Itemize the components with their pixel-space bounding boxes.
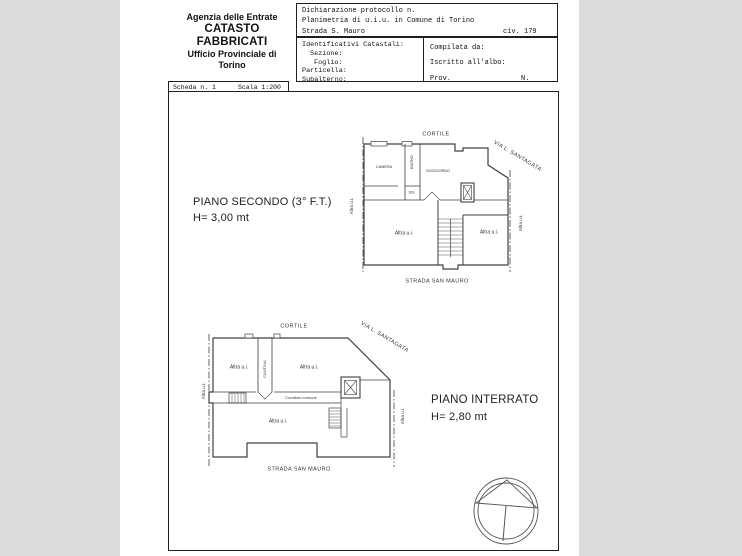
interrato-cantina-label: CANTINA (263, 360, 267, 378)
floor-plan-secondo-drawing (363, 137, 510, 272)
north-compass-icon (474, 478, 538, 544)
cadastral-document: Agenzia delle Entrate CATASTO FABBRICATI… (0, 0, 742, 556)
interrato-altra-big-label: Altra u.i. (269, 420, 287, 425)
secondo-camera-label: CAMERA (376, 166, 392, 170)
secondo-dis-label: DIS. (409, 191, 416, 195)
secondo-bagno-label: BAGNO (411, 155, 415, 169)
interrato-strada-label: STRADA SAN MAURO (267, 467, 330, 473)
secondo-altra-right-label: Altra u.i. (480, 231, 498, 236)
plan-secondo-height: H= 3,00 mt (193, 212, 249, 224)
interrato-altra-right-label: Altra u.i. (300, 366, 318, 371)
plan-secondo-title: PIANO SECONDO (3° F.T.) (193, 196, 332, 208)
secondo-soggiorno-label: SOGGIORNO (426, 170, 450, 174)
interrato-altra-side-right-label: Altra u.i. (401, 408, 406, 425)
interrato-cortile-label: CORTILE (280, 324, 307, 330)
plan-interrato-title: PIANO INTERRATO (431, 394, 538, 406)
floor-plan-drawing (0, 0, 742, 556)
floor-plan-interrato-drawing (209, 334, 394, 467)
secondo-altra-side-left-label: Altra u.i. (350, 198, 355, 215)
plan-interrato-height: H= 2,80 mt (431, 411, 487, 423)
secondo-altra-left-label: Altra u.i. (395, 232, 413, 237)
interrato-altra-left-label: Altra u.i. (230, 366, 248, 371)
secondo-strada-label: STRADA SAN MAURO (405, 279, 468, 285)
interrato-corridoio-label: Corridoio comune (285, 396, 317, 400)
secondo-cortile-label: CORTILE (422, 132, 449, 138)
secondo-altra-side-right-label: Altra u.i. (519, 215, 524, 232)
interrato-altra-side-left-label: Altra u.i. (202, 383, 207, 400)
